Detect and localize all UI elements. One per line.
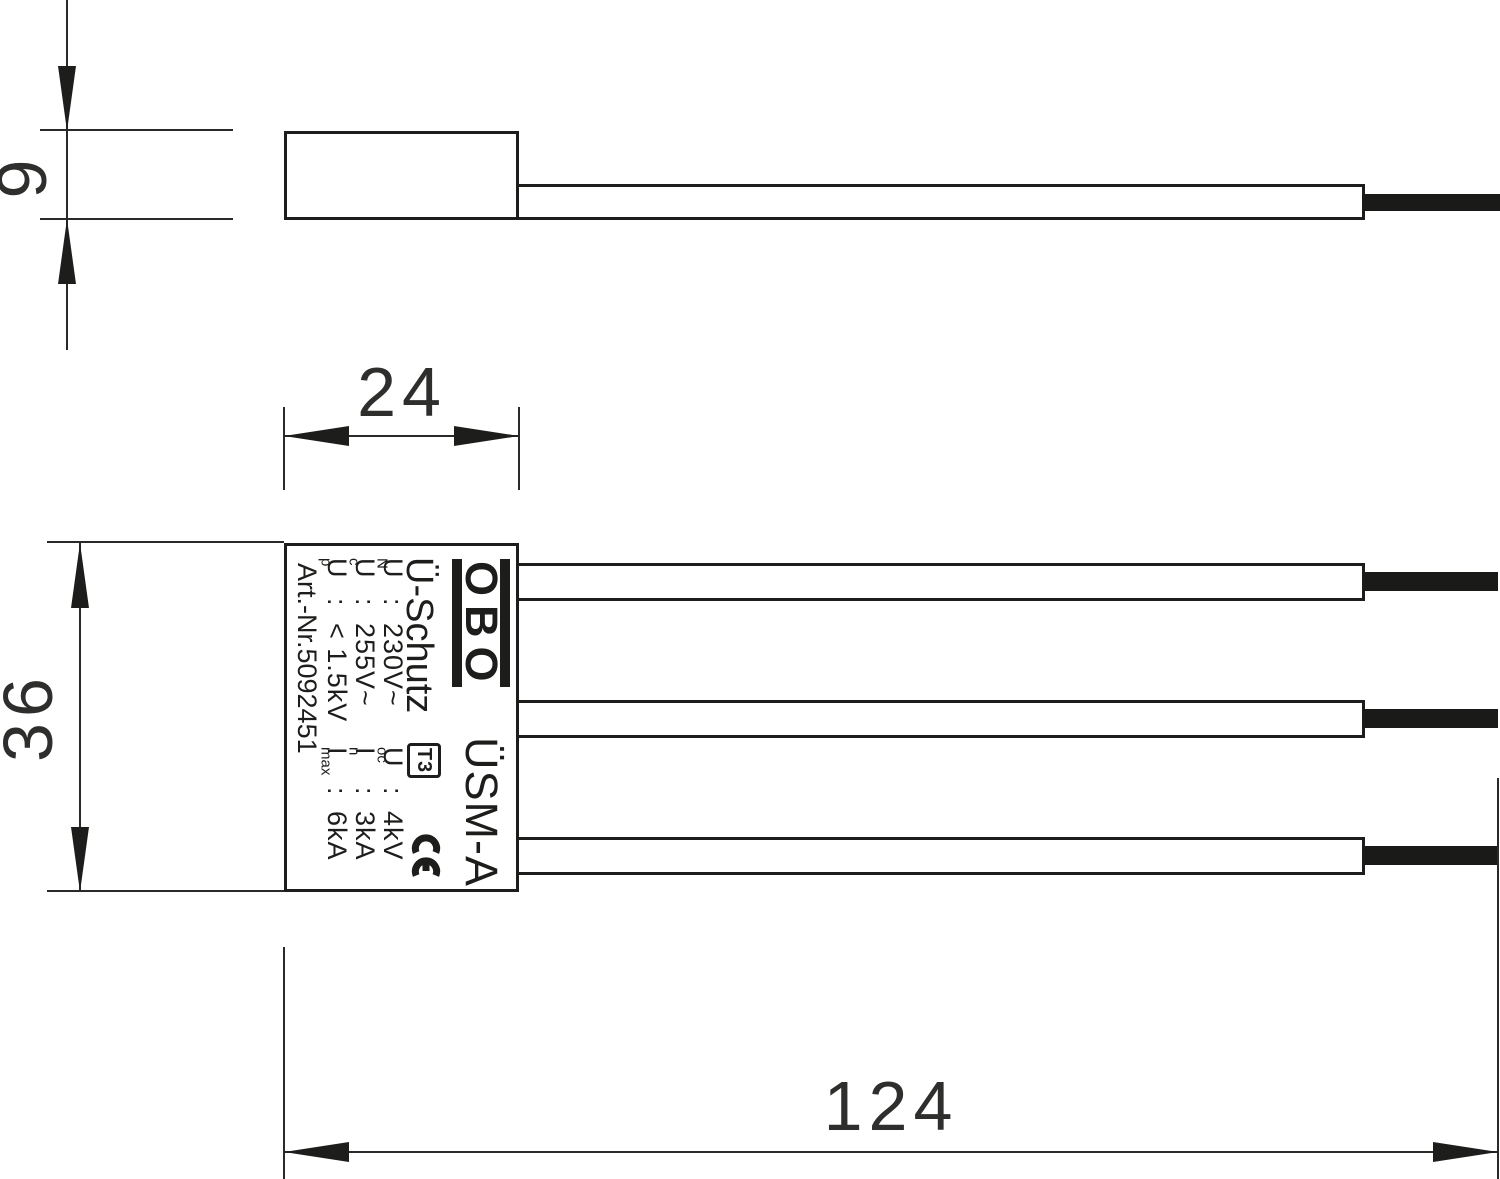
front-wire-1-end bbox=[1363, 572, 1498, 591]
spec-value: 255V~ bbox=[351, 623, 379, 707]
dim9-line bbox=[66, 0, 68, 350]
dim124-line bbox=[284, 1151, 1498, 1153]
spec-colon: : bbox=[351, 787, 379, 795]
spec-row-1: UN : 230V~ Uoc : 4kV bbox=[379, 543, 407, 892]
technical-drawing: 9 24 OBO ÜSM-A Ü-Schutz T3 UN : 230V~ Uo… bbox=[0, 0, 1500, 1179]
device-label: OBO ÜSM-A Ü-Schutz T3 UN : 230V~ Uoc : 4… bbox=[284, 543, 518, 892]
dim124-value: 124 bbox=[791, 1071, 991, 1141]
front-wire-3 bbox=[516, 837, 1365, 875]
front-wire-2 bbox=[516, 700, 1365, 738]
dim24-extension-right bbox=[518, 407, 520, 490]
article-number: Art.-Nr.5092451 bbox=[293, 563, 321, 754]
spec-value: 4kV bbox=[379, 811, 407, 861]
obo-logo-bar-bottom bbox=[452, 559, 462, 687]
spec-symbol: Uc bbox=[349, 558, 379, 566]
dim24-extension-left bbox=[283, 407, 285, 490]
obo-logo-text: OBO bbox=[461, 559, 501, 687]
product-name: ÜSM-A bbox=[458, 737, 504, 887]
dim36-arrow-up-icon bbox=[71, 543, 89, 608]
dim24-arrow-right-icon bbox=[454, 426, 519, 446]
dim36-value: 36 bbox=[0, 642, 63, 792]
obo-logo: OBO bbox=[452, 559, 510, 687]
side-view-wire bbox=[516, 184, 1365, 220]
spec-symbol: Imax bbox=[321, 747, 351, 775]
spec-colon: : bbox=[323, 787, 351, 795]
dim124-extension-right bbox=[1497, 778, 1499, 1179]
dim24-value: 24 bbox=[322, 357, 482, 427]
spec-row-2: Uc : 255V~ In : 3kA bbox=[351, 543, 379, 892]
dim124-arrow-left-icon bbox=[284, 1142, 349, 1162]
spec-colon: : bbox=[379, 598, 407, 606]
spec-colon: : bbox=[323, 598, 351, 606]
dim24-arrow-left-icon bbox=[284, 426, 349, 446]
front-wire-1 bbox=[516, 563, 1365, 601]
front-wire-2-end bbox=[1363, 709, 1498, 728]
spec-symbol: Up bbox=[321, 558, 351, 566]
spec-symbol: Uoc bbox=[377, 747, 407, 763]
dim124-arrow-right-icon bbox=[1433, 1142, 1498, 1162]
dim36-arrow-down-icon bbox=[71, 827, 89, 892]
spec-colon: : bbox=[379, 787, 407, 795]
spec-value: 6kA bbox=[323, 811, 351, 861]
spec-row-3: Up : < 1.5kV Imax : 6kA bbox=[323, 543, 351, 892]
spec-value: < 1.5kV bbox=[323, 623, 351, 722]
side-view-body bbox=[284, 131, 519, 220]
dim9-value: 9 bbox=[0, 131, 57, 221]
spec-symbol: In bbox=[349, 747, 379, 755]
spec-symbol: UN bbox=[377, 558, 407, 569]
dim9-arrow-down-icon bbox=[58, 66, 76, 131]
side-view-wire-end bbox=[1362, 194, 1500, 211]
t3-class-badge: T3 bbox=[407, 743, 441, 778]
front-wire-3-end bbox=[1363, 846, 1498, 865]
spec-colon: : bbox=[351, 598, 379, 606]
dim9-arrow-up-icon bbox=[58, 219, 76, 284]
spec-value: 230V~ bbox=[379, 623, 407, 707]
spec-value: 3kA bbox=[351, 811, 379, 861]
ce-mark-icon bbox=[411, 833, 441, 879]
